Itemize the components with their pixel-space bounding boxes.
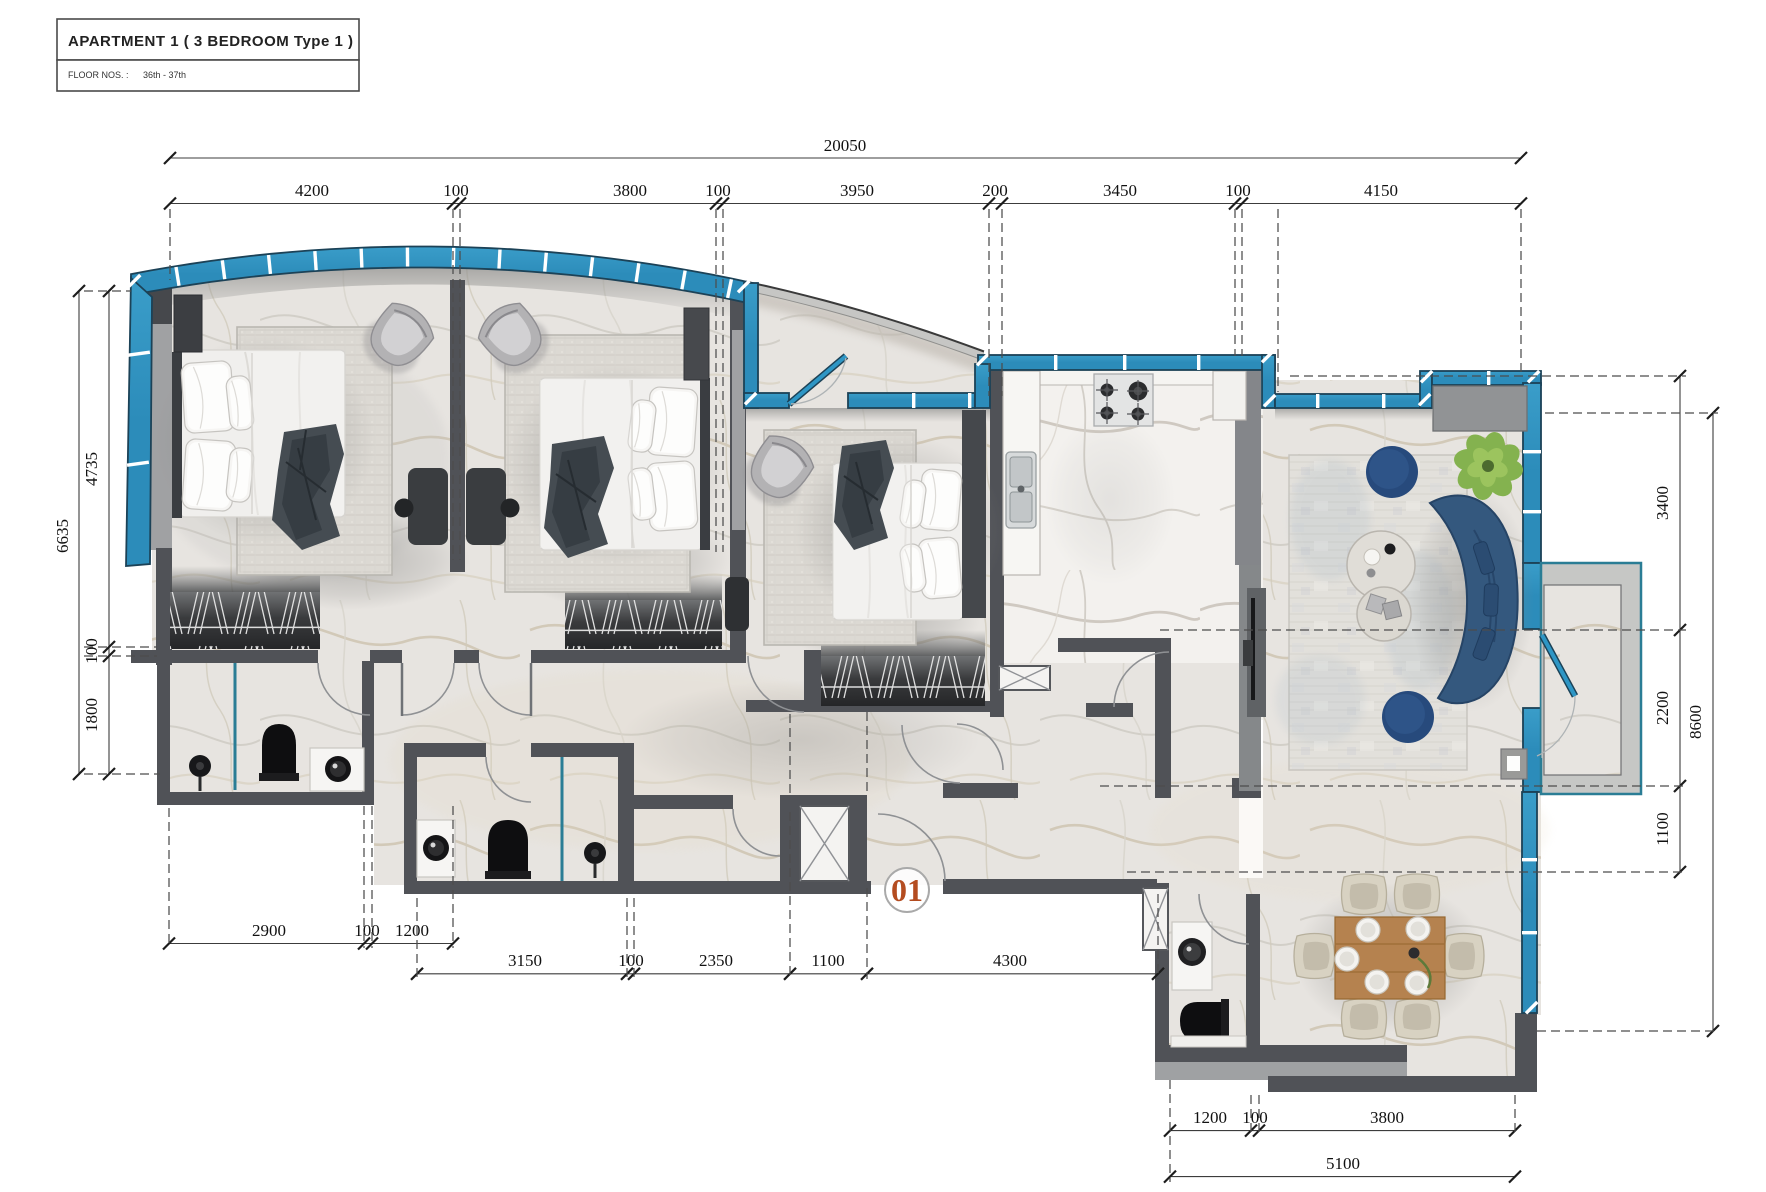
svg-text:20050: 20050 (824, 136, 867, 155)
svg-text:3400: 3400 (1653, 486, 1672, 520)
svg-text:2200: 2200 (1653, 691, 1672, 725)
svg-text:3150: 3150 (508, 951, 542, 970)
svg-text:1200: 1200 (1193, 1108, 1227, 1127)
svg-text:8600: 8600 (1686, 705, 1705, 739)
svg-text:6635: 6635 (53, 519, 72, 553)
svg-text:4735: 4735 (82, 452, 101, 486)
svg-text:100: 100 (618, 951, 644, 970)
svg-text:100: 100 (443, 181, 469, 200)
svg-text:36th - 37th: 36th - 37th (143, 70, 186, 80)
svg-text:100: 100 (82, 638, 101, 664)
svg-text:3950: 3950 (840, 181, 874, 200)
svg-text:3800: 3800 (613, 181, 647, 200)
svg-text:4150: 4150 (1364, 181, 1398, 200)
svg-text:4200: 4200 (295, 181, 329, 200)
svg-text:100: 100 (354, 921, 380, 940)
svg-text:2350: 2350 (699, 951, 733, 970)
svg-text:100: 100 (1242, 1108, 1268, 1127)
svg-text:100: 100 (705, 181, 731, 200)
svg-text:5100: 5100 (1326, 1154, 1360, 1173)
svg-text:FLOOR NOS. :: FLOOR NOS. : (68, 70, 129, 80)
svg-text:1100: 1100 (1653, 812, 1672, 845)
svg-text:2900: 2900 (252, 921, 286, 940)
svg-text:100: 100 (1225, 181, 1251, 200)
svg-text:3800: 3800 (1370, 1108, 1404, 1127)
svg-text:3450: 3450 (1103, 181, 1137, 200)
svg-text:APARTMENT 1 ( 3 BEDROOM Typ: APARTMENT 1 ( 3 BEDROOM Type 1 ) (68, 33, 353, 50)
svg-text:4300: 4300 (993, 951, 1027, 970)
svg-text:1100: 1100 (811, 951, 844, 970)
svg-text:1200: 1200 (395, 921, 429, 940)
svg-text:01: 01 (891, 872, 923, 908)
svg-text:200: 200 (982, 181, 1008, 200)
svg-text:1800: 1800 (82, 698, 101, 732)
